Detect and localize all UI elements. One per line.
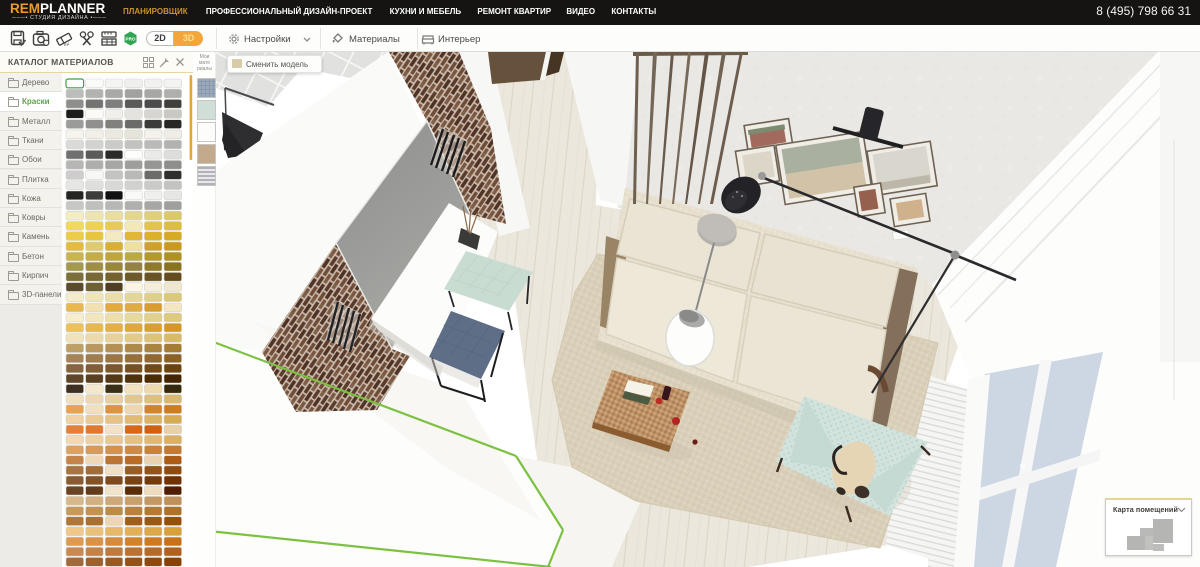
svg-text:m²: m² [64, 42, 70, 47]
svg-text:PRO: PRO [126, 37, 136, 42]
